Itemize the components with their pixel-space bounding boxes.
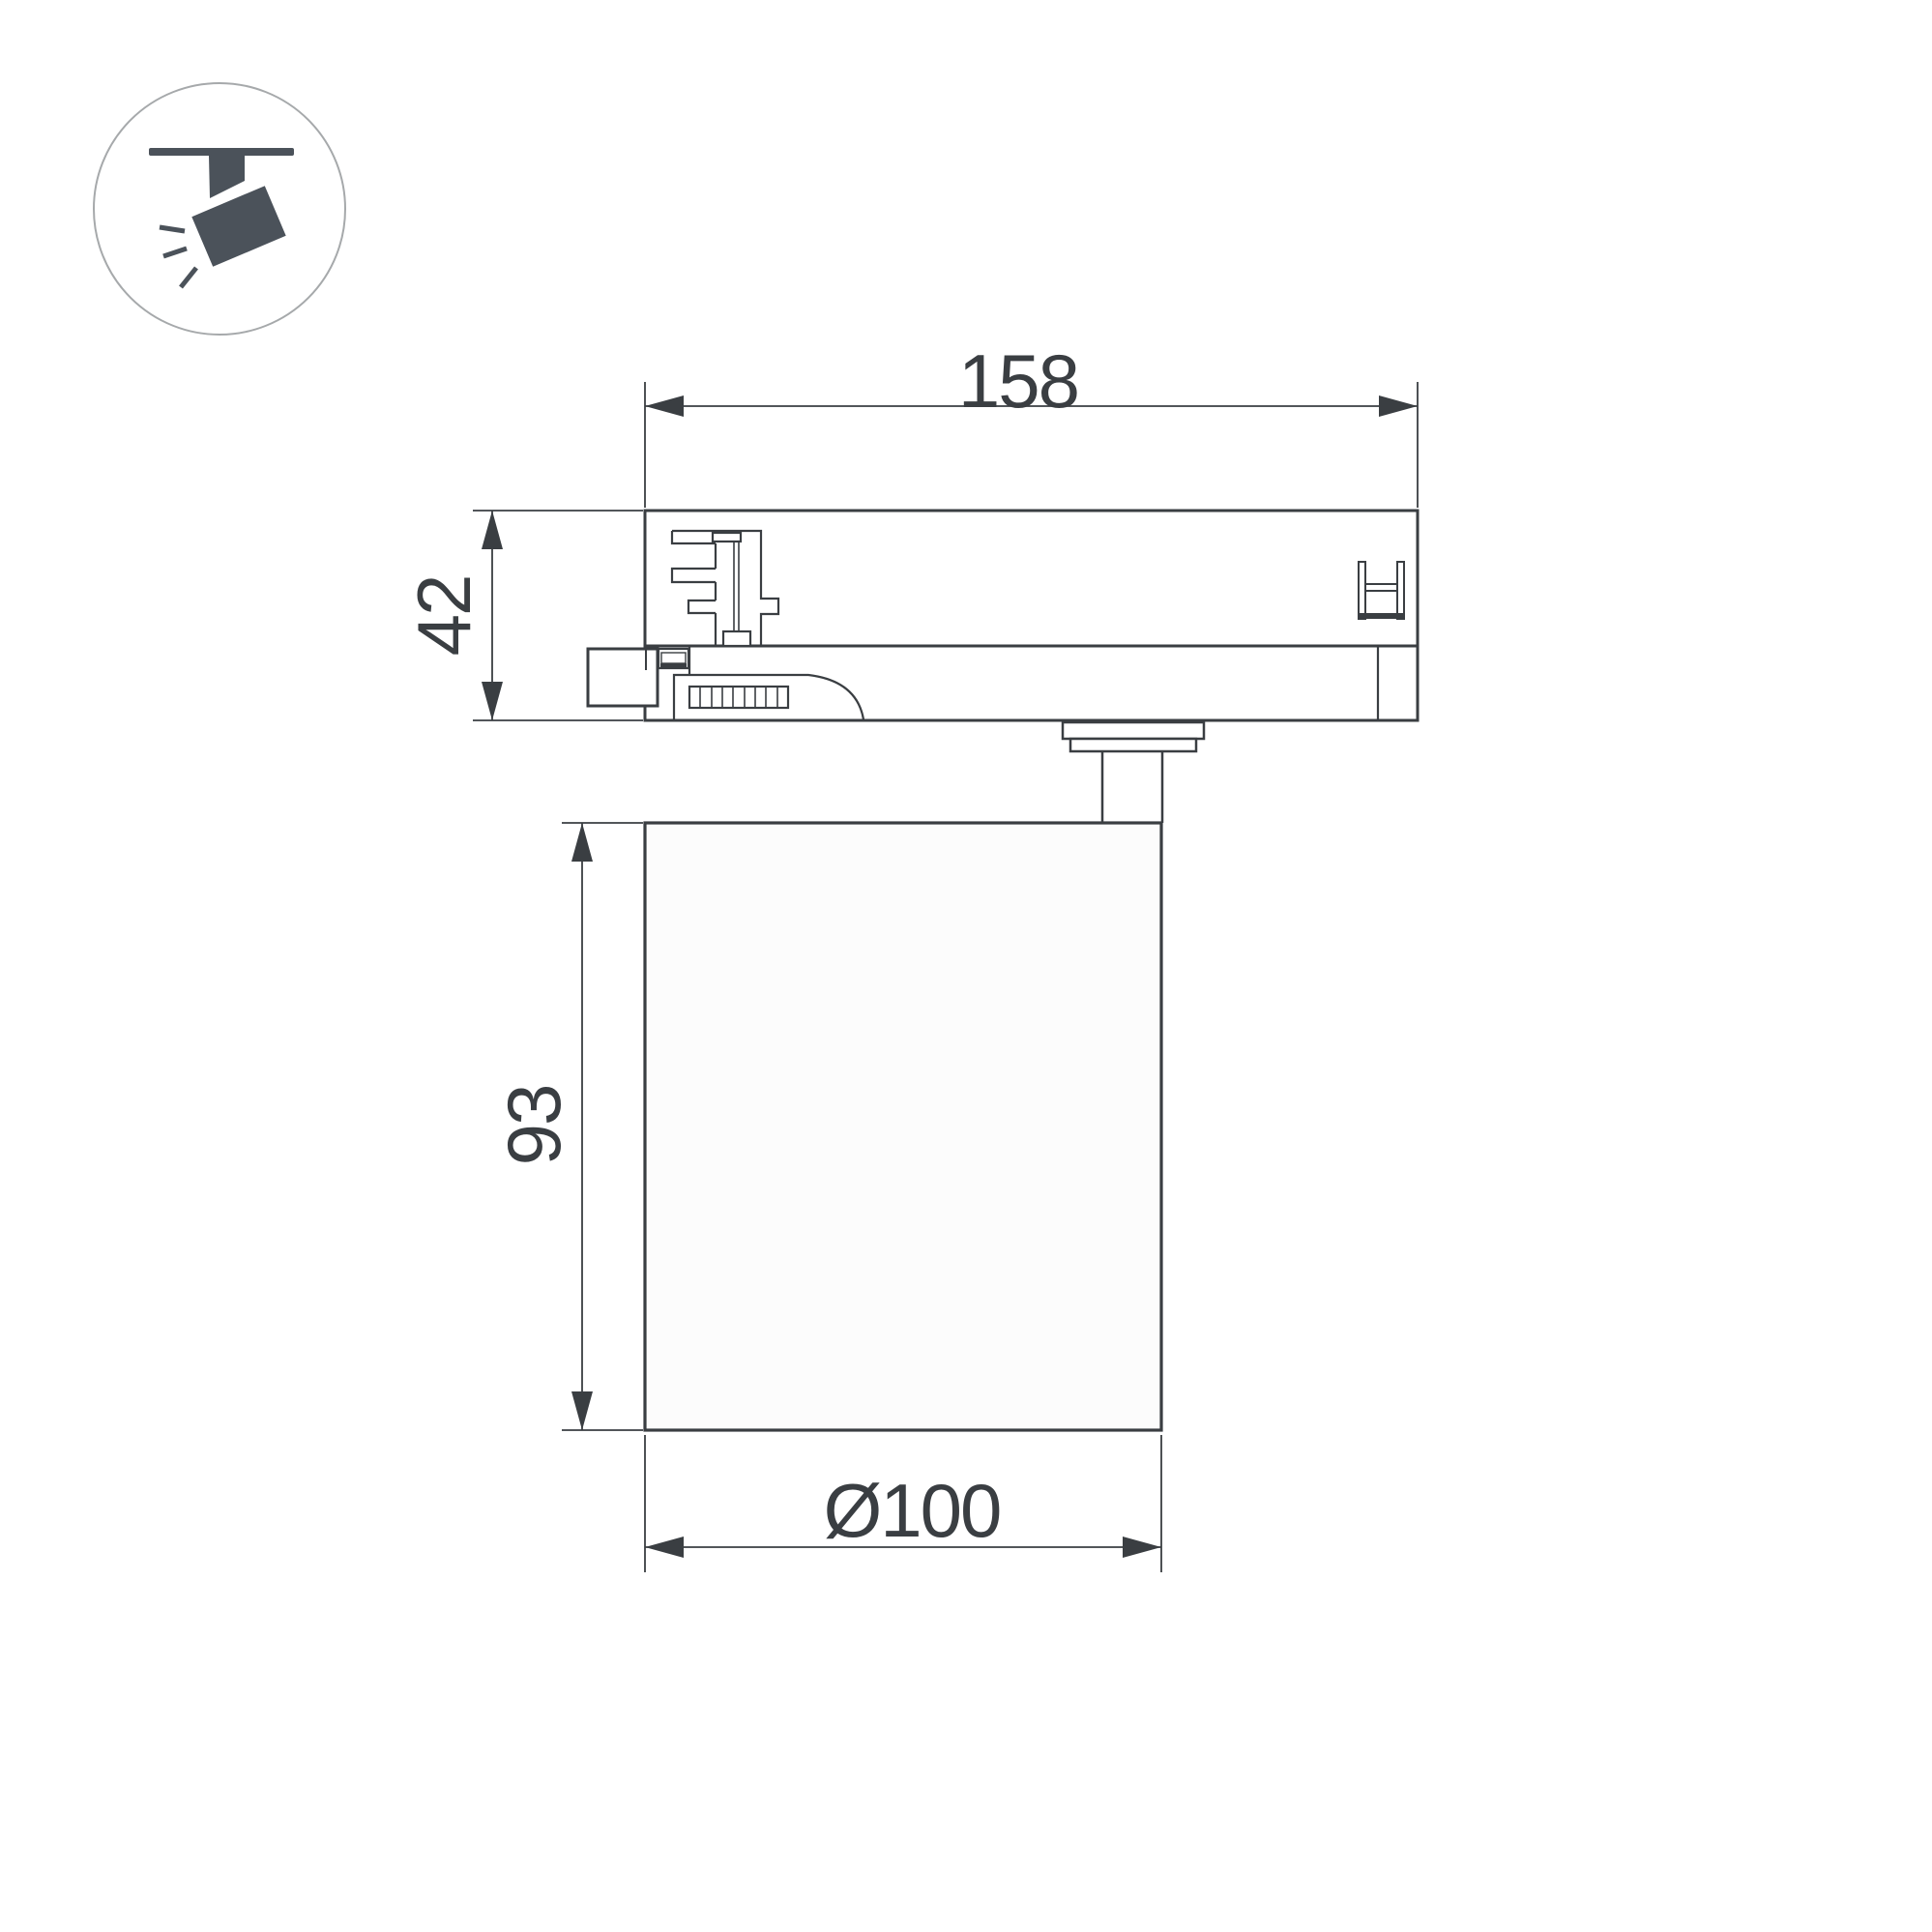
dimension-track-width: 158	[645, 338, 1418, 508]
adapter-lower-section	[645, 646, 1418, 720]
dimension-label-body-diameter: Ø100	[824, 1468, 1001, 1553]
locking-lever-knob	[588, 649, 658, 706]
dimension-body-height: 93	[491, 823, 643, 1430]
lever-latch-bar	[660, 663, 687, 668]
dimension-label-body-height: 93	[491, 1086, 576, 1166]
dimension-body-diameter: Ø100	[645, 1435, 1161, 1572]
mount-stem	[1102, 752, 1162, 823]
mount-step-lower	[1070, 739, 1196, 751]
track-light-dimension-drawing: 158 42 93 Ø100	[0, 0, 1932, 1932]
icon-track-bar	[149, 148, 294, 156]
track-spotlight-icon	[94, 83, 345, 335]
connector-foot	[723, 631, 750, 646]
lamp-cylinder-body	[645, 823, 1161, 1430]
mount-step-upper	[1063, 722, 1204, 739]
dimension-label-adapter-height: 42	[401, 576, 486, 657]
dimension-drawing-page: 158 42 93 Ø100	[0, 0, 1932, 1932]
dimension-label-track-width: 158	[958, 338, 1078, 424]
ribbed-slider	[689, 687, 788, 708]
connector-pin-cap	[713, 533, 741, 542]
swivel-mount	[1063, 722, 1204, 751]
